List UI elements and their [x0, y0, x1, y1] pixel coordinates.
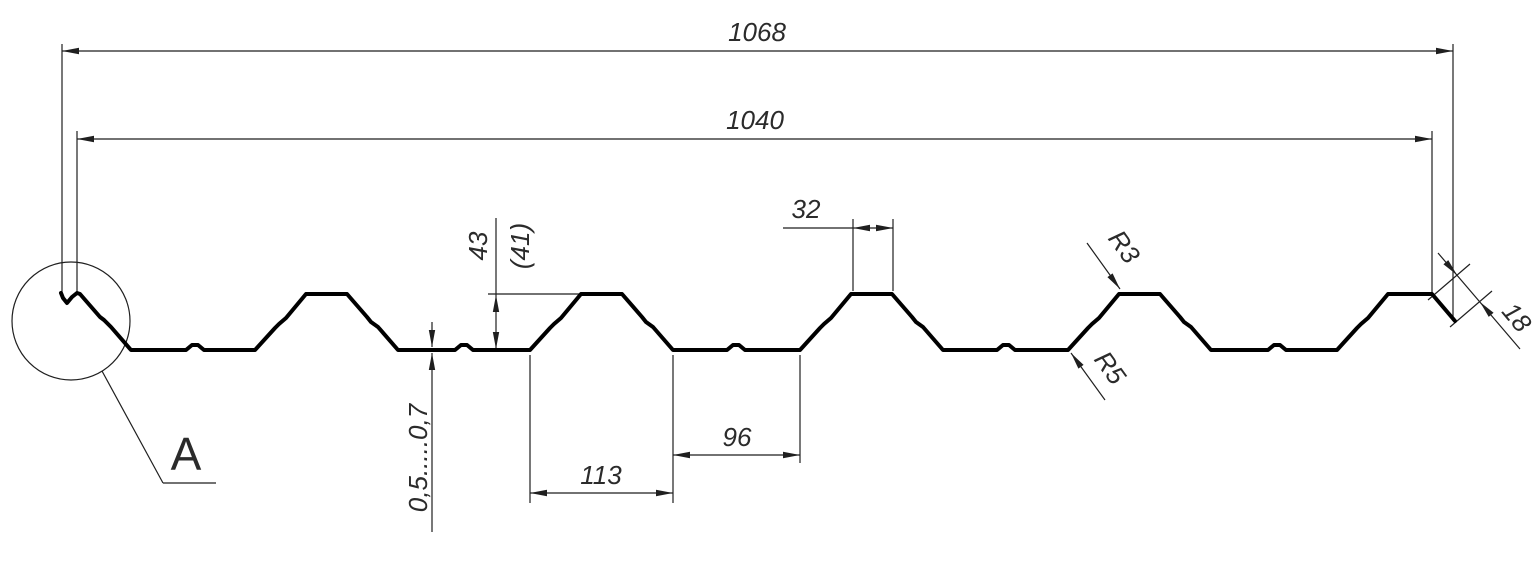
arrowhead	[1071, 353, 1084, 369]
arrowhead	[493, 295, 499, 312]
detail-leader	[102, 371, 163, 483]
detail-circle	[12, 262, 130, 380]
drawing-canvas: 1068 1040 43 (41) 32 113 96 0,5.....0,7 …	[0, 0, 1539, 561]
arrowhead	[493, 332, 499, 349]
profile-outline	[61, 293, 1455, 350]
arrowhead	[656, 490, 673, 496]
dim-overall-width: 1068	[728, 17, 786, 47]
dim-sheet-thickness: 0,5.....0,7	[403, 402, 433, 512]
arrowhead	[853, 225, 870, 231]
dim-edge-lip: 18	[1496, 296, 1538, 338]
arrowhead	[1480, 302, 1494, 317]
arrowhead	[673, 452, 690, 458]
dim-rib-base-width: 113	[580, 460, 622, 490]
dimension-texts: 1068 1040 43 (41) 32 113 96 0,5.....0,7 …	[171, 17, 1538, 512]
arrowhead	[876, 225, 893, 231]
arrowhead	[783, 452, 800, 458]
arrowhead	[1415, 136, 1432, 142]
arrowhead	[77, 136, 94, 142]
arrowhead	[530, 490, 547, 496]
profile-drawing: 1068 1040 43 (41) 32 113 96 0,5.....0,7 …	[0, 0, 1539, 561]
dim-radius-bottom: R5	[1088, 345, 1132, 390]
dim-radius-top: R3	[1102, 224, 1146, 269]
dim-rib-height: 43	[463, 231, 493, 260]
arrowhead	[62, 48, 79, 54]
arrowhead	[1436, 48, 1453, 54]
arrowhead	[429, 353, 435, 370]
dim-valley-width: 96	[723, 422, 752, 452]
detail-label: A	[171, 428, 202, 480]
dim-rib-height-ref: (41)	[505, 223, 535, 269]
arrowhead	[429, 330, 435, 347]
arrowhead	[1107, 273, 1120, 289]
dim-useful-width: 1040	[726, 105, 784, 135]
dim-crest-width: 32	[792, 194, 821, 224]
